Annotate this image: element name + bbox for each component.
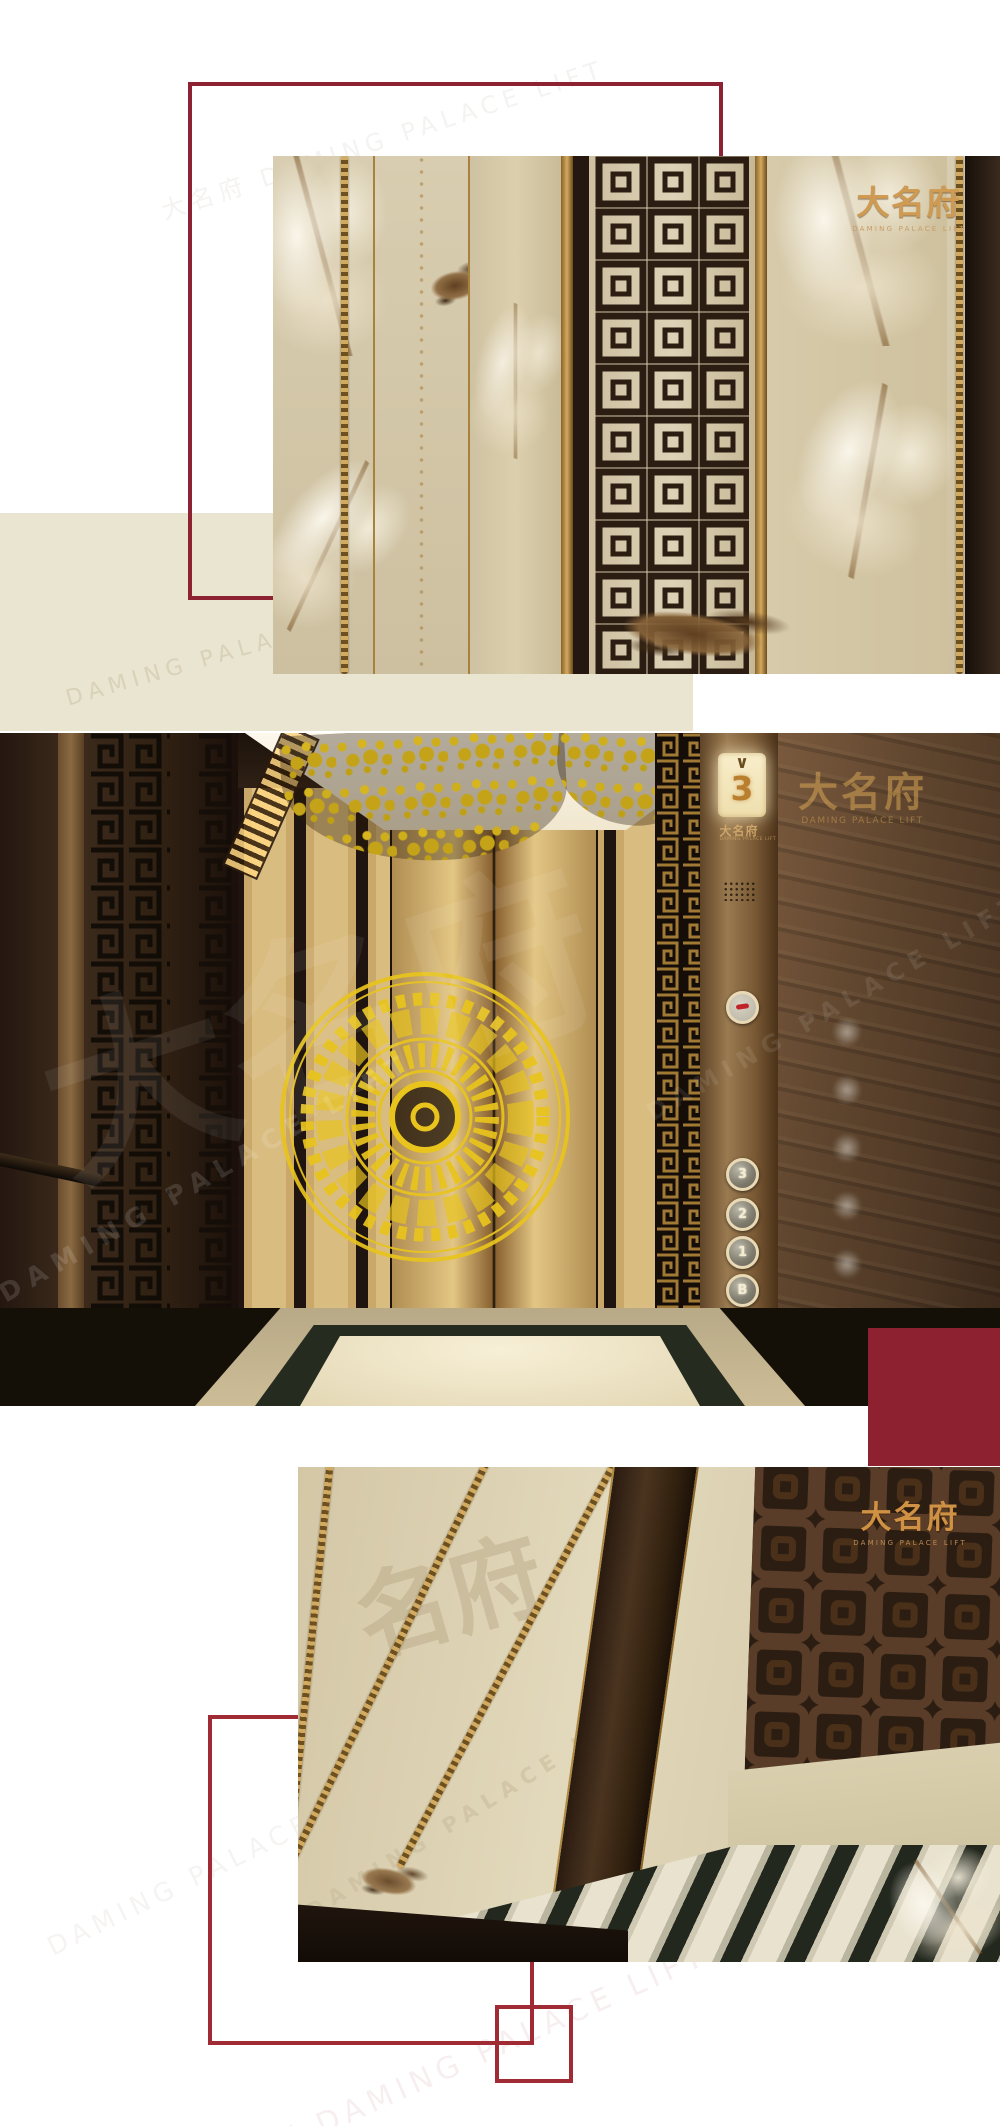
panel-brand-logo-cn: 大名府 <box>700 825 778 837</box>
floor-button-1-label: 1 <box>729 1239 756 1266</box>
wall-brand-watermark-en: DAMING PALACE LIFT <box>795 817 930 826</box>
magnolia-flowers <box>273 156 388 356</box>
dark-divider <box>573 156 589 674</box>
floor-center-panel <box>300 1336 700 1406</box>
panel-brand-logo-en: DAMING PALACE LIFT <box>720 837 759 842</box>
floor-button-2: 2 <box>726 1198 759 1231</box>
gold-bead-chain <box>956 156 963 674</box>
floor-indicator-display: ∨ 3 <box>718 753 766 817</box>
dark-wood-pillar <box>373 156 470 674</box>
wall-brand-watermark-cn: 大名府 <box>795 773 930 813</box>
floor-indicator-value: 3 <box>718 771 766 807</box>
floor-button-3: 3 <box>726 1158 759 1191</box>
brand-logo-cn: 大名府 <box>850 1503 970 1534</box>
photo-watermark-cn: 名府 <box>338 1498 558 1682</box>
brand-logo-cn: 大名府 <box>849 186 969 219</box>
floor-button-2-label: 2 <box>729 1201 756 1228</box>
photo-elevator-corner-view: 名府 DAMING PALACE LIFT 大名府 DAMING PALACE … <box>298 1467 1000 1962</box>
gold-trim <box>561 156 573 674</box>
brand-logo: 大名府 DAMING PALACE LIFT <box>850 1503 970 1547</box>
alarm-phone-icon <box>736 1003 750 1010</box>
promo-page: 大名府 DAMING PALACE LIFT DAMING PALACE LIF… <box>0 0 1000 2126</box>
bottom-accent-frame-small <box>495 2005 573 2083</box>
wall-brand-watermark: 大名府 DAMING PALACE LIFT <box>795 773 930 826</box>
floor-button-b-label: B <box>729 1277 756 1304</box>
brand-logo: 大名府 DAMING PALACE LIFT <box>849 186 969 233</box>
panel-brand-logo: 大名府 DAMING PALACE LIFT <box>700 825 778 846</box>
dark-edge-panel <box>965 156 1000 674</box>
floor-button-3-label: 3 <box>729 1161 756 1188</box>
photo-elevator-wall-closeup: 大名府 DAMING PALACE LIFT <box>273 156 1000 674</box>
floor-button-1: 1 <box>726 1236 759 1269</box>
red-accent-square <box>868 1328 1000 1466</box>
brand-logo-en: DAMING PALACE LIFT <box>849 226 969 233</box>
gold-bead-chain <box>341 156 348 674</box>
brand-logo-en: DAMING PALACE LIFT <box>850 1540 970 1547</box>
photo-elevator-cab-interior: ∨ 3 大名府 DAMING PALACE LIFT 3 2 1 B ◁▷ ▷◁… <box>0 733 1000 1406</box>
alarm-button <box>726 991 759 1024</box>
speaker-grille <box>723 881 757 901</box>
floor-button-b: B <box>726 1274 759 1307</box>
gold-fret-divider-pattern <box>655 733 700 1333</box>
